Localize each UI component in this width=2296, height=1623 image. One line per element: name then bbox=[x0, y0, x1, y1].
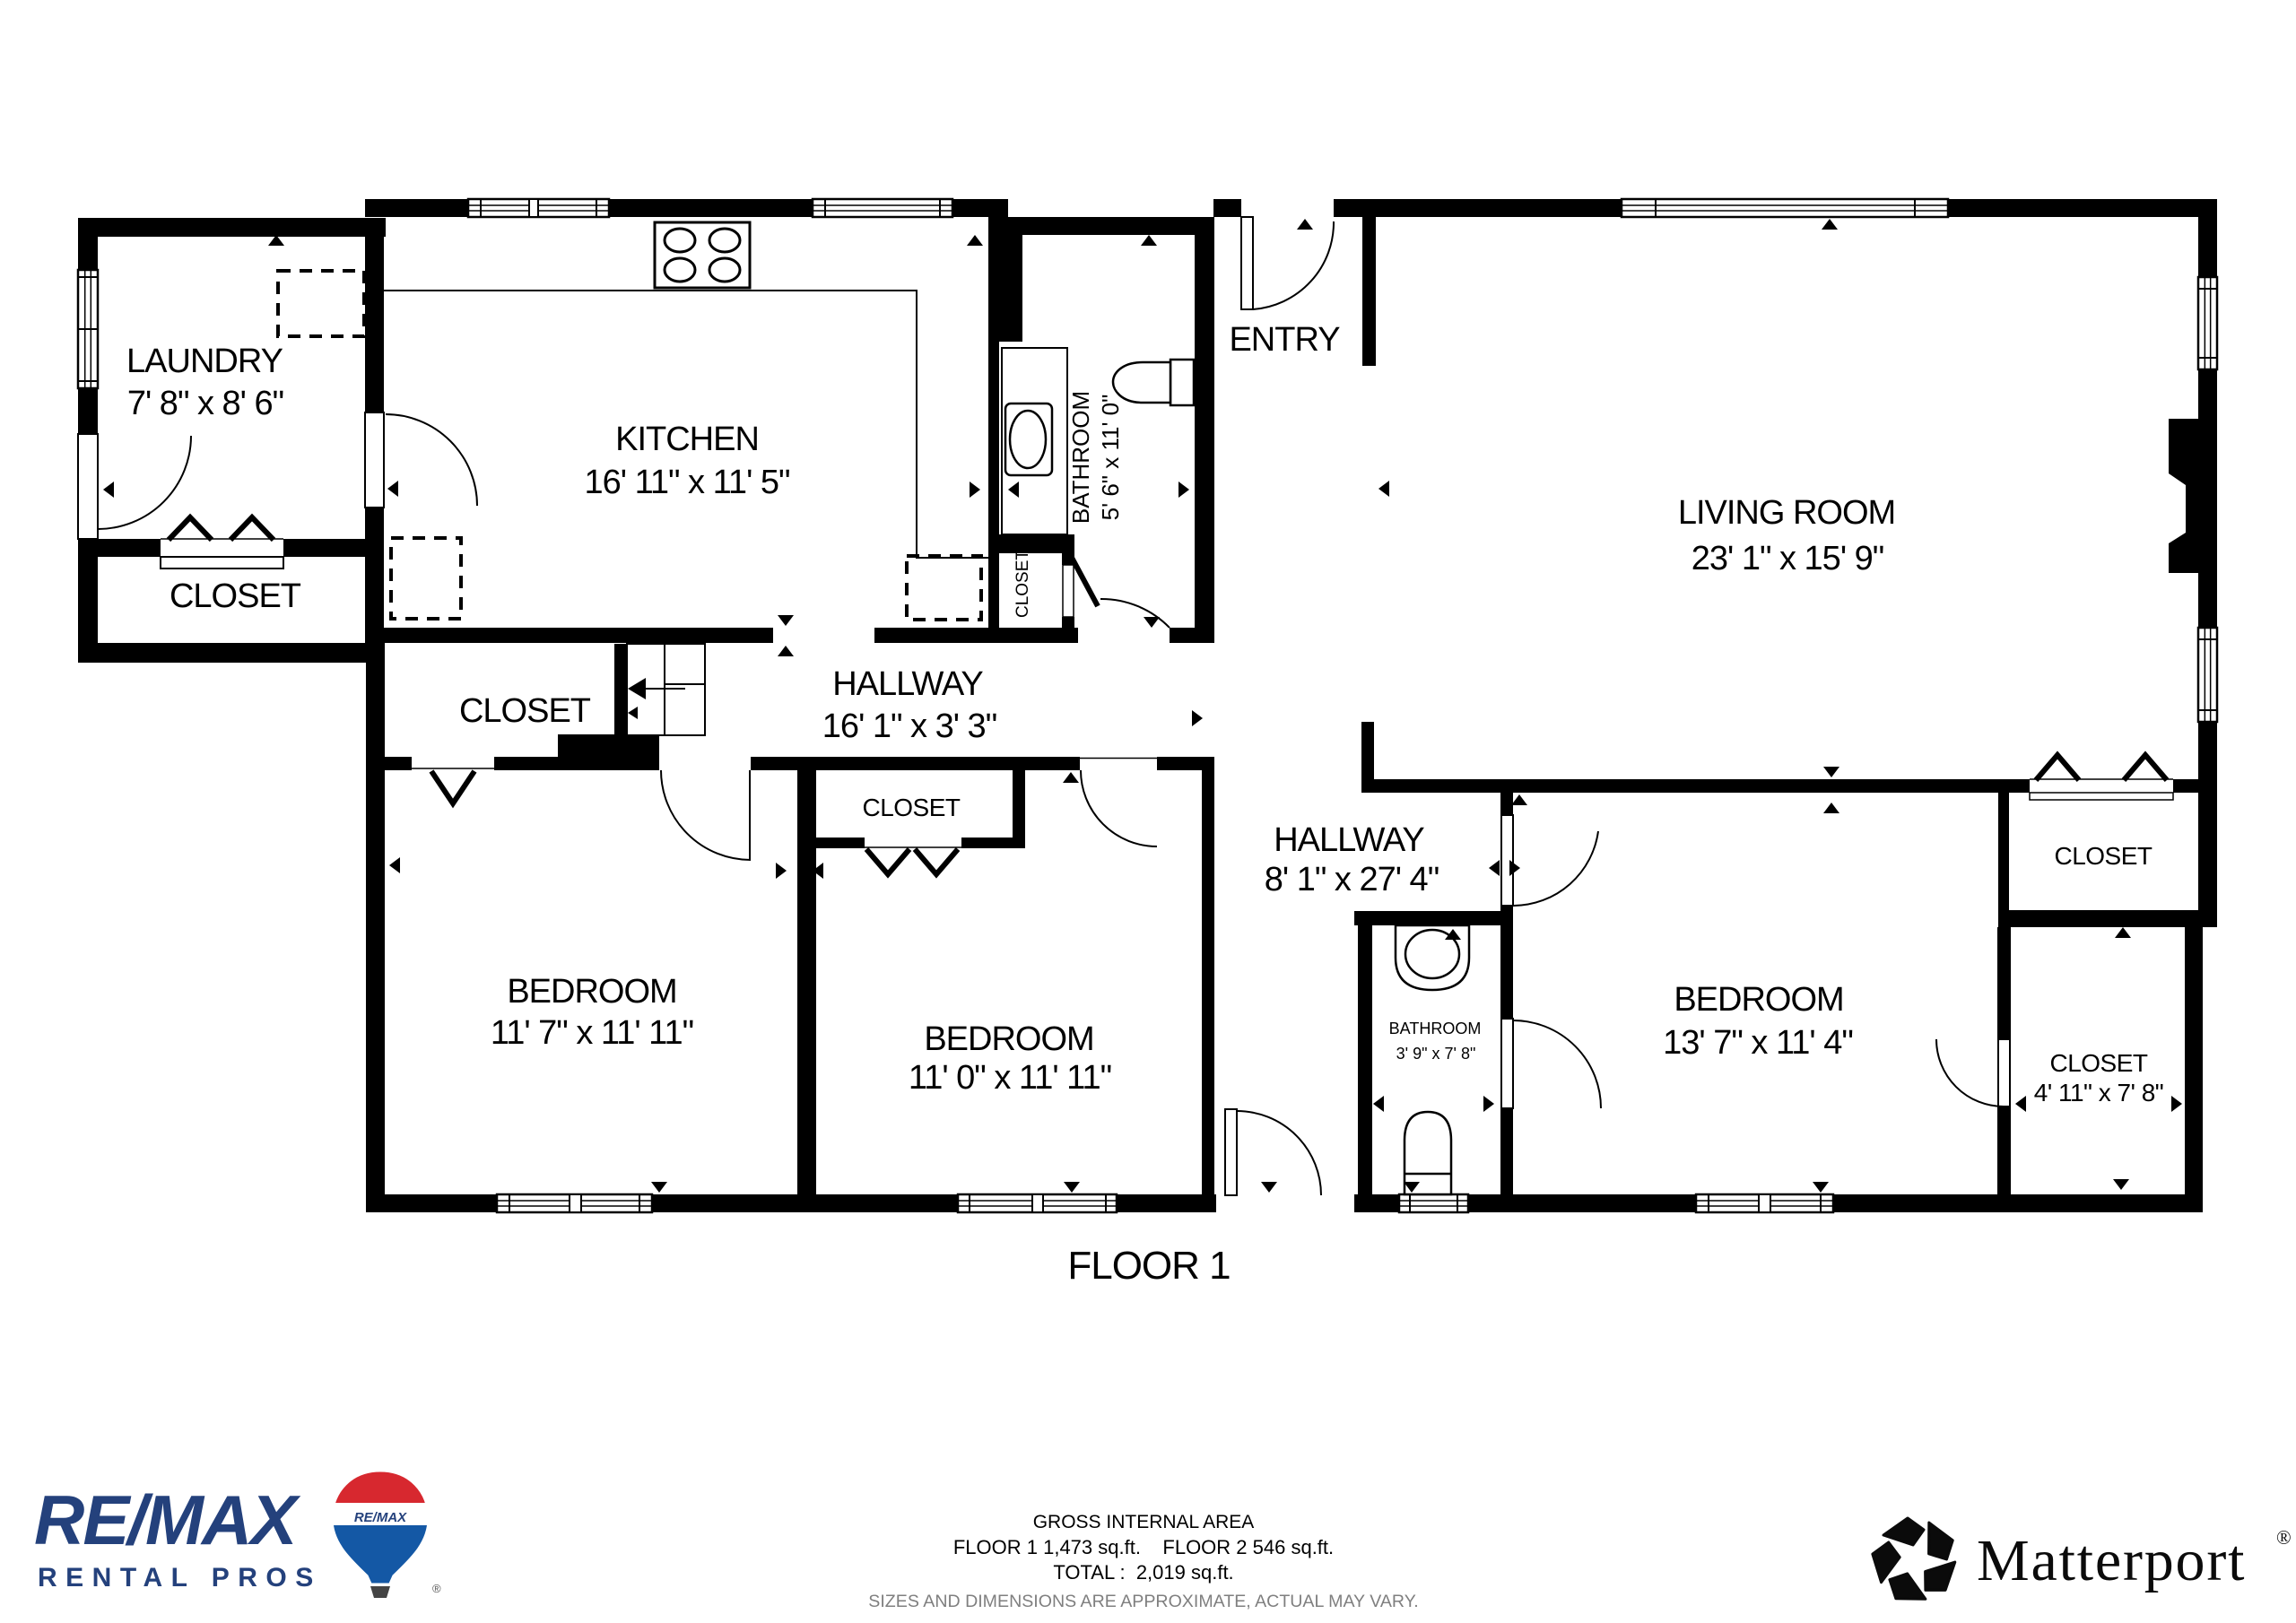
svg-text:11' 7" x 11' 11": 11' 7" x 11' 11" bbox=[491, 1014, 693, 1052]
svg-text:23' 1" x 15' 9": 23' 1" x 15' 9" bbox=[1692, 540, 1884, 577]
svg-text:4' 11" x 7' 8": 4' 11" x 7' 8" bbox=[2034, 1079, 2163, 1107]
svg-text:RE/MAX: RE/MAX bbox=[354, 1510, 407, 1525]
svg-text:CLOSET: CLOSET bbox=[459, 692, 591, 730]
svg-text:ENTRY: ENTRY bbox=[1229, 321, 1340, 359]
svg-text:HALLWAY: HALLWAY bbox=[832, 665, 983, 703]
svg-text:®: ® bbox=[432, 1582, 441, 1595]
svg-text:BEDROOM: BEDROOM bbox=[507, 973, 676, 1011]
svg-text:BEDROOM: BEDROOM bbox=[1674, 981, 1843, 1019]
svg-text:SIZES AND DIMENSIONS ARE APPRO: SIZES AND DIMENSIONS ARE APPROXIMATE, AC… bbox=[868, 1592, 1418, 1611]
svg-text:BATHROOM: BATHROOM bbox=[1389, 1020, 1482, 1037]
svg-text:GROSS INTERNAL AREA: GROSS INTERNAL AREA bbox=[1033, 1512, 1255, 1532]
svg-text:3' 9" x 7' 8": 3' 9" x 7' 8" bbox=[1396, 1045, 1476, 1063]
svg-text:LIVING ROOM: LIVING ROOM bbox=[1678, 494, 1895, 532]
svg-text:RENTAL PROS: RENTAL PROS bbox=[38, 1563, 322, 1593]
svg-text:16' 1" x 3' 3": 16' 1" x 3' 3" bbox=[822, 707, 996, 745]
svg-text:11' 0" x 11' 11": 11' 0" x 11' 11" bbox=[909, 1059, 1111, 1097]
svg-text:CLOSET: CLOSET bbox=[2054, 842, 2152, 870]
svg-text:13' 7" x 11' 4": 13' 7" x 11' 4" bbox=[1663, 1024, 1853, 1062]
svg-text:RE/MAX: RE/MAX bbox=[34, 1480, 300, 1559]
svg-text:7' 8" x 8' 6": 7' 8" x 8' 6" bbox=[127, 385, 283, 422]
svg-text:5' 6" x 11' 0": 5' 6" x 11' 0" bbox=[1097, 395, 1124, 521]
svg-text:Matterport: Matterport bbox=[1977, 1528, 2246, 1593]
svg-text:8' 1" x 27' 4": 8' 1" x 27' 4" bbox=[1265, 861, 1439, 898]
svg-text:TOTAL : 2,019 sq.ft.: TOTAL : 2,019 sq.ft. bbox=[1053, 1561, 1233, 1584]
svg-text:KITCHEN: KITCHEN bbox=[615, 421, 759, 458]
svg-text:HALLWAY: HALLWAY bbox=[1274, 821, 1424, 859]
svg-text:FLOOR 1: FLOOR 1 bbox=[1067, 1244, 1230, 1288]
svg-text:CLOSET: CLOSET bbox=[2049, 1049, 2147, 1077]
svg-text:BEDROOM: BEDROOM bbox=[924, 1020, 1093, 1058]
svg-text:CLOSET: CLOSET bbox=[170, 577, 301, 615]
svg-text:CLOSET: CLOSET bbox=[862, 794, 960, 821]
svg-text:BATHROOM: BATHROOM bbox=[1067, 391, 1094, 524]
svg-text:®: ® bbox=[2276, 1526, 2292, 1549]
svg-text:FLOOR 1 1,473 sq.ft. FLOOR: FLOOR 1 1,473 sq.ft. FLOOR 2 546 sq.ft. bbox=[953, 1536, 1334, 1558]
svg-text:CLOSET: CLOSET bbox=[1013, 550, 1032, 618]
svg-text:16' 11" x 11' 5": 16' 11" x 11' 5" bbox=[584, 464, 789, 501]
svg-text:LAUNDRY: LAUNDRY bbox=[126, 343, 283, 380]
